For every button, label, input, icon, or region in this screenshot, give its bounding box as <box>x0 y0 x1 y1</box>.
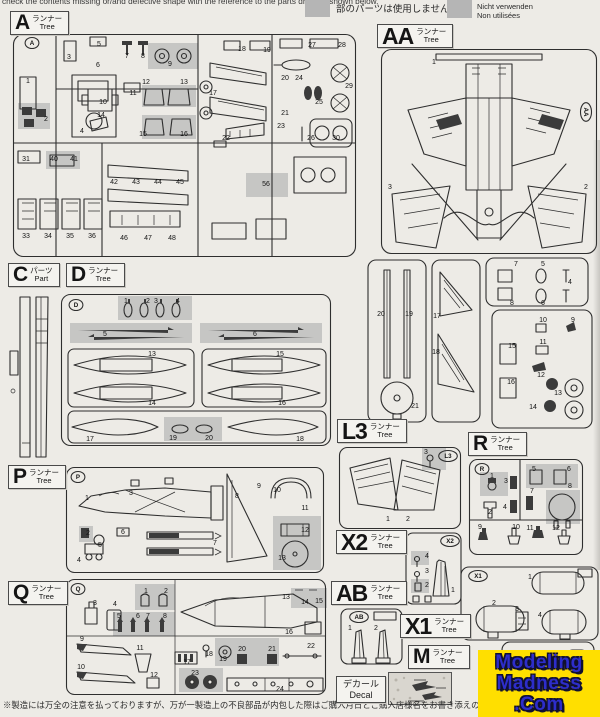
part-number: 4 <box>538 612 542 619</box>
part-number: 5 <box>541 261 545 268</box>
part-number: 4 <box>176 298 180 305</box>
part-number: 2 <box>44 116 48 123</box>
part-number: 48 <box>168 235 176 242</box>
part-number: 6 <box>121 529 125 536</box>
part-number: 12 <box>150 672 158 679</box>
part-number: 47 <box>144 235 152 242</box>
sprue-d-diagram: 1234561314151617181920D <box>60 293 332 447</box>
part-number: 1 <box>432 59 436 66</box>
tree-label-d: D ランナーTree <box>66 263 125 287</box>
part-number: 2 <box>488 509 492 516</box>
part-number: 3 <box>388 184 392 191</box>
part-number: 27 <box>308 42 316 49</box>
tree-en: Tree <box>32 23 62 32</box>
part-number: 3 <box>515 606 519 613</box>
part-number: 8 <box>568 483 572 490</box>
part-number: 22 <box>307 643 315 650</box>
tree-label-ab: AB ランナーTree <box>331 581 407 605</box>
part-number: 14 <box>148 400 156 407</box>
part-number: 6 <box>253 331 257 338</box>
part-number: 19 <box>169 435 177 442</box>
part-number: 20 <box>281 75 289 82</box>
part-number: 2 <box>425 582 429 589</box>
sprue-letter-marker: AA <box>581 103 592 122</box>
tree-letter: C <box>13 265 27 285</box>
part-number: 7 <box>213 540 217 547</box>
svg-text:R: R <box>480 466 485 473</box>
sprue-letter-marker: P <box>71 472 85 483</box>
sprue-letter-marker: D <box>69 300 83 311</box>
part-number: 8 <box>141 53 145 60</box>
part-number: 5 <box>97 41 101 48</box>
tree-label-x2: X2 ランナーTree <box>336 530 407 554</box>
part-number: 14 <box>97 112 105 119</box>
part-number: 17 <box>183 659 191 666</box>
part-number: 7 <box>146 613 150 620</box>
part-number: 2 <box>146 298 150 305</box>
part-number: 4 <box>503 504 507 511</box>
part-number: 15 <box>276 351 284 358</box>
part-number: 9 <box>478 524 482 531</box>
part-number: 8 <box>510 300 514 307</box>
part-number: 43 <box>132 179 140 186</box>
part-number: 8 <box>163 613 167 620</box>
tree-label-m: M ランナーTree <box>408 645 470 669</box>
part-number: 11 <box>526 525 533 532</box>
part-number: 5 <box>532 466 536 473</box>
part-number: 5 <box>98 542 102 549</box>
svg-text:AA: AA <box>582 108 589 117</box>
part-number: 41 <box>70 156 78 163</box>
part-number: 12 <box>142 79 150 86</box>
sprue-x2-diagram: 4321X2 <box>405 532 463 606</box>
part-number: 15 <box>315 598 323 605</box>
part-number: 21 <box>268 646 276 653</box>
tree-en: Tree <box>416 36 446 45</box>
part-number: 25 <box>315 99 323 106</box>
tree-label-p: P ランナーTree <box>8 465 66 489</box>
tree-label-c: C パーツPart <box>8 263 60 287</box>
part-number: 24 <box>276 686 284 693</box>
part-number: 26 <box>307 135 315 142</box>
part-number: 11 <box>129 90 136 97</box>
tree-en: Tree <box>88 275 118 284</box>
tree-label-x1: X1 ランナーTree <box>400 614 471 638</box>
part-number: 15 <box>508 343 516 350</box>
part-number: 1 <box>386 516 390 523</box>
part-number: 18 <box>238 46 246 53</box>
part-number: 22 <box>222 135 230 142</box>
part-number: 14 <box>301 599 309 606</box>
part-number: 3 <box>424 449 428 456</box>
tree-label-l3: L3 ランナーTree <box>337 419 407 443</box>
tree-en: Tree <box>490 444 520 453</box>
part-number: 3 <box>154 298 158 305</box>
part-c-diagram <box>8 293 60 463</box>
tree-letter: X2 <box>341 532 367 552</box>
part-number: 1 <box>490 473 494 480</box>
tree-label-r: R ランナーTree <box>468 432 527 456</box>
part-number: 13 <box>554 390 562 397</box>
svg-text:L3: L3 <box>444 453 452 460</box>
note-de: Nicht verwenden <box>477 2 597 11</box>
part-number: 10 <box>77 664 85 671</box>
sprue-q-diagram: 341256789101112131415161718192021222324Q <box>65 578 327 696</box>
part-number: 29 <box>345 83 353 90</box>
tree-en: Tree <box>31 593 61 602</box>
svg-text:D: D <box>74 302 79 309</box>
part-number: 28 <box>338 42 346 49</box>
part-number: 12 <box>537 372 545 379</box>
part-number: 1 <box>528 574 532 581</box>
part-number: 17 <box>86 436 94 443</box>
part-number: 35 <box>66 233 74 240</box>
decal-jp: デカール <box>343 679 379 690</box>
tree-en: Tree <box>29 477 59 486</box>
part-number: 3 <box>425 568 429 575</box>
part-number: 1 <box>26 78 30 85</box>
part-number: 2 <box>374 625 378 632</box>
part-number: 23 <box>277 123 285 130</box>
part-number: 13 <box>148 351 156 358</box>
part-number: 15 <box>139 131 147 138</box>
gray-swatch-2 <box>447 0 472 18</box>
part-number: 13 <box>282 594 290 601</box>
part-number: 1 <box>451 587 455 594</box>
logo-word-3: .Com <box>514 694 564 715</box>
tree-letter: M <box>413 647 430 667</box>
tree-en: Tree <box>434 626 464 635</box>
part-number: 33 <box>22 233 30 240</box>
part-number: 5 <box>103 331 107 338</box>
part-number: 6 <box>567 466 571 473</box>
tree-letter: AA <box>382 26 413 46</box>
part-number: 10 <box>99 99 107 106</box>
part-number: 3 <box>93 600 97 607</box>
part-number: 6 <box>541 300 545 307</box>
part-number: 17 <box>433 313 441 320</box>
part-number: 19 <box>219 656 227 663</box>
sprue-letter-marker: R <box>475 464 489 475</box>
part-number: 44 <box>154 179 162 186</box>
sprue-ab-diagram: 12AB <box>340 608 404 668</box>
part-number: 13 <box>278 555 286 562</box>
sprue-letter-marker: Q <box>71 584 85 595</box>
part-number: 34 <box>44 233 52 240</box>
part-number: 1 <box>144 588 148 595</box>
part-number: 18 <box>205 651 213 658</box>
svg-text:P: P <box>76 474 80 481</box>
part-number: 21 <box>411 403 419 410</box>
part-number: 7 <box>530 488 534 495</box>
part-number: 4 <box>113 601 117 608</box>
part-number: 31 <box>22 156 30 163</box>
part-number: 20 <box>238 646 246 653</box>
part-number: 12 <box>552 525 560 532</box>
part-number: 6 <box>96 62 100 69</box>
part-number: 10 <box>512 524 520 531</box>
part-number: 8 <box>235 493 239 500</box>
svg-text:AB: AB <box>355 614 364 621</box>
part-number: 16 <box>278 400 286 407</box>
tree-letter: A <box>15 13 29 33</box>
tree-letter: Q <box>13 583 28 603</box>
sprue-l3-diagram: 123L3 <box>338 446 462 530</box>
tree-en: Part <box>30 275 52 284</box>
part-number: 5 <box>117 613 121 620</box>
part-number: 42 <box>110 179 118 186</box>
tree-label-a: A ランナーTree <box>10 11 69 35</box>
part-number: 18 <box>432 349 440 356</box>
part-number: 19 <box>405 311 413 318</box>
part-number: 4 <box>77 557 81 564</box>
header-note-jp: 部のパーツは使用しません。 <box>336 1 459 15</box>
part-number: 4 <box>425 553 429 560</box>
part-number: 2 <box>164 588 168 595</box>
part-number: 3 <box>129 490 133 497</box>
part-number: 1 <box>124 298 128 305</box>
part-number: 1 <box>348 625 352 632</box>
part-number: 6 <box>136 613 140 620</box>
part-number: 9 <box>257 483 261 490</box>
part-number: 46 <box>120 235 128 242</box>
part-number: 10 <box>539 317 547 324</box>
sprue-p-diagram: 13245678910111213P <box>65 466 325 574</box>
part-number: 18 <box>296 436 304 443</box>
tree-letter: D <box>71 265 85 285</box>
sprue-aa-diagram: 132AA <box>380 48 598 255</box>
part-number: 17 <box>209 90 217 97</box>
part-number: 14 <box>529 404 537 411</box>
logo-word-1: Modeling <box>495 652 582 673</box>
tree-label-q: Q ランナーTree <box>8 581 68 605</box>
sprue-letter-marker: AB <box>350 612 369 623</box>
part-number: 10 <box>273 487 281 494</box>
part-number: 9 <box>571 317 575 324</box>
decal-en: Decal <box>350 690 373 701</box>
part-number: 20 <box>205 435 213 442</box>
part-number: 13 <box>180 79 188 86</box>
scan-edge-shadow <box>593 140 600 570</box>
sprue-a-diagram: 1234567891011121314151617181920212223242… <box>12 33 357 258</box>
sprue-x1-diagram: 1234X1 <box>460 566 600 642</box>
tree-en: Tree <box>370 593 400 602</box>
part-number: 36 <box>88 233 96 240</box>
part-number: 3 <box>67 54 71 61</box>
gray-swatch-1 <box>305 0 330 17</box>
sprue-r-diagram: 123456789101112R <box>468 458 584 556</box>
part-number: 23 <box>191 670 199 677</box>
part-number: 56 <box>262 181 270 188</box>
sprue-aa-lower-diagram: 201921171875864109111512161314 <box>360 258 600 432</box>
part-number: 4 <box>568 279 572 286</box>
tree-letter: AB <box>336 583 367 603</box>
tree-letter: X1 <box>405 616 431 636</box>
part-number: 7 <box>125 53 129 60</box>
tree-letter: R <box>473 434 487 454</box>
part-number: 45 <box>176 179 184 186</box>
part-number: 2 <box>86 530 90 537</box>
tree-letter: L3 <box>342 421 367 441</box>
part-number: 19 <box>263 47 271 54</box>
sprue-letter-marker: X2 <box>441 536 460 547</box>
tree-letter: P <box>13 467 26 487</box>
part-number: 24 <box>295 75 303 82</box>
modelingmadness-logo: Modeling Madness .Com <box>478 650 600 717</box>
part-number: 7 <box>514 261 518 268</box>
part-number: 2 <box>584 184 588 191</box>
svg-text:X2: X2 <box>446 538 454 545</box>
part-number: 4 <box>80 128 84 135</box>
part-number: 11 <box>136 645 143 652</box>
part-number: 3 <box>504 478 508 485</box>
part-number: 9 <box>168 61 172 68</box>
part-number: 40 <box>50 156 58 163</box>
tree-en: Tree <box>370 431 400 440</box>
part-number: 16 <box>285 629 293 636</box>
part-number: 11 <box>539 339 546 346</box>
part-number: 12 <box>301 527 309 534</box>
part-number: 2 <box>492 600 496 607</box>
svg-text:A: A <box>30 40 35 47</box>
decal-label: デカール Decal <box>336 676 386 703</box>
part-number: 16 <box>507 379 515 386</box>
part-number: 11 <box>301 505 308 512</box>
sprue-letter-marker: X1 <box>469 571 488 582</box>
tree-en: Tree <box>370 542 400 551</box>
part-number: 2 <box>406 516 410 523</box>
part-number: 30 <box>332 135 340 142</box>
logo-word-2: Madness <box>497 673 582 694</box>
tree-en: Tree <box>433 657 463 666</box>
part-number: 20 <box>377 311 385 318</box>
svg-text:Q: Q <box>76 586 81 593</box>
part-number: 1 <box>85 495 89 502</box>
part-number: 9 <box>80 636 84 643</box>
part-number: 21 <box>281 110 289 117</box>
note-fr: Non utilisées <box>477 11 597 20</box>
part-number: 16 <box>180 131 188 138</box>
svg-text:X1: X1 <box>474 573 482 580</box>
tree-label-aa: AA ランナーTree <box>377 24 453 48</box>
sprue-letter-marker: A <box>25 38 39 49</box>
header-note-multilang: Parts not for use. Nicht verwenden Non u… <box>477 0 597 20</box>
